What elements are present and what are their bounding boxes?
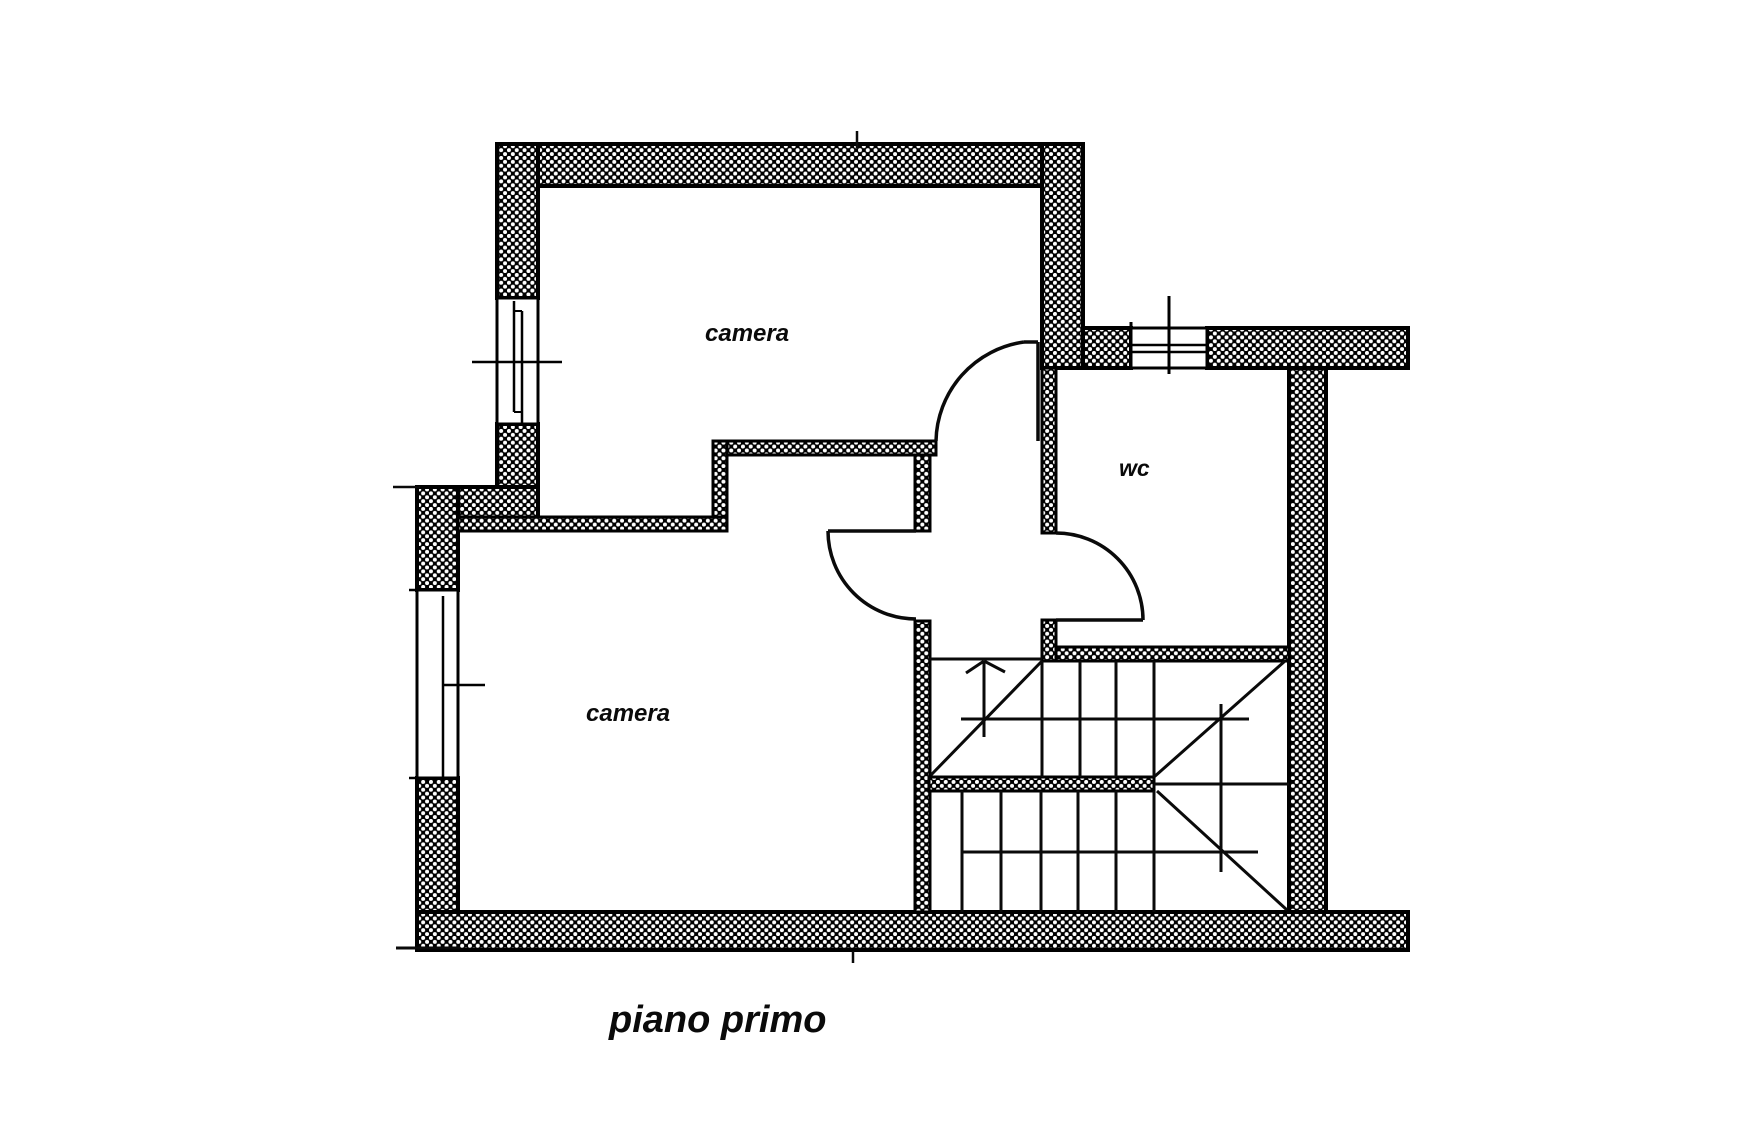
svg-text:piano primo: piano primo: [608, 999, 826, 1041]
svg-text:camera: camera: [586, 700, 670, 727]
svg-text:camera: camera: [705, 320, 789, 347]
svg-text:wc: wc: [1119, 455, 1150, 481]
